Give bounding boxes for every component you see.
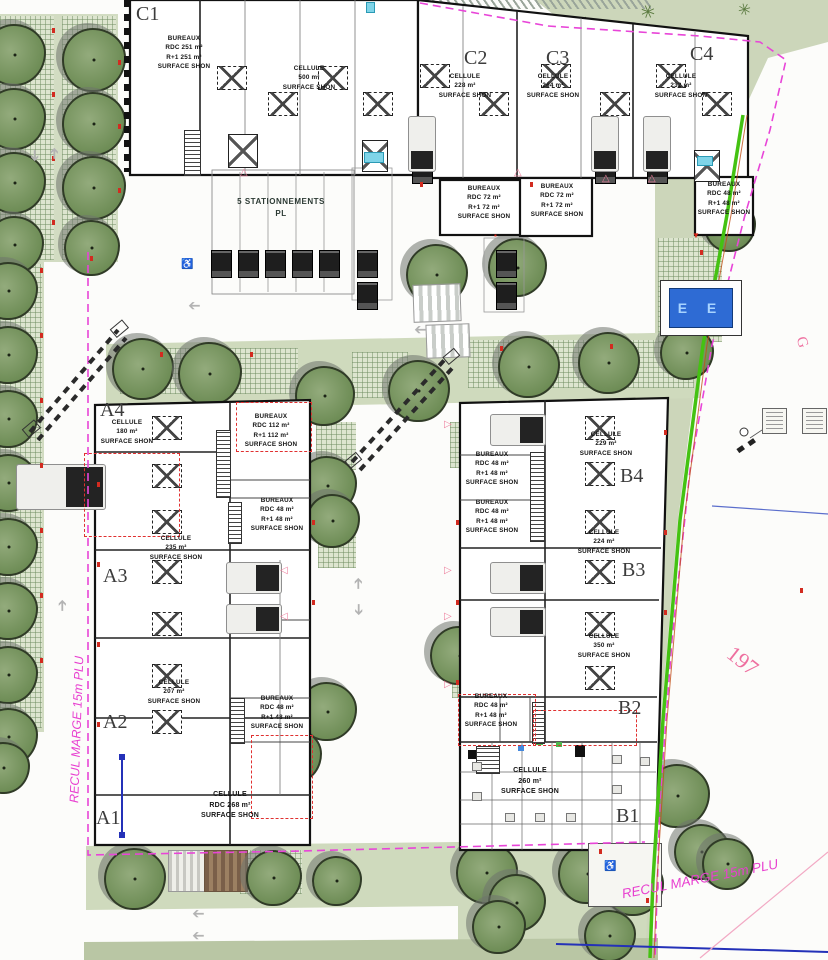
- red-tick: [800, 588, 803, 593]
- b4-bureaux2-label: BUREAUX RDC 48 m² R+1 48 m² SURFACE SHON: [460, 498, 524, 536]
- traffic-arrow-icon: ➔: [192, 928, 205, 943]
- red-tick: [250, 352, 253, 357]
- a3-cellule-label: CELLULE 235 m² SURFACE SHON: [144, 534, 208, 562]
- red-tick: [40, 398, 43, 403]
- b1-cellule-label: CELLULE 260 m² SURFACE SHON: [496, 766, 564, 798]
- red-tick: [456, 680, 459, 685]
- door-triangle-icon: △: [240, 168, 248, 178]
- building-label-a3: A3: [103, 566, 127, 586]
- wheelchair-icon: ♿: [604, 862, 616, 872]
- red-tick: [97, 722, 100, 727]
- bureaux-72b-label: BUREAUX RDC 72 m² R+1 72 m² SURFACE SHON: [524, 182, 590, 220]
- stationnements-label: 5 STATIONNEMENTS PL: [220, 196, 342, 220]
- bureaux-72a-label: BUREAUX RDC 72 m² R+1 72 m² SURFACE SHON: [444, 184, 524, 222]
- a1-cellule-label: CELLULE RDC 268 m² SURFACE SHON: [170, 790, 290, 822]
- red-tick: [97, 562, 100, 567]
- building-label-b4: B4: [620, 466, 643, 486]
- red-tick: [420, 182, 423, 187]
- red-tick: [52, 28, 55, 33]
- building-label-c1: C1: [136, 4, 159, 24]
- building-label-c3: C3: [546, 48, 569, 68]
- glazing-mark: [366, 2, 375, 13]
- red-tick: [52, 92, 55, 97]
- glazing-mark: [364, 152, 384, 163]
- b4-bureaux1-label: BUREAUX RDC 48 m² R+1 48 m² SURFACE SHON: [460, 450, 524, 488]
- red-tick: [610, 344, 613, 349]
- door-triangle-icon: ▷: [444, 566, 452, 576]
- red-tick: [97, 482, 100, 487]
- traffic-arrow-icon: ➔: [351, 577, 366, 590]
- red-tick: [700, 250, 703, 255]
- red-tick: [40, 593, 43, 598]
- door-triangle-icon: △: [514, 168, 522, 178]
- utility-note-box: [802, 408, 827, 434]
- b2-cellule-label: CELLULE 350 m² SURFACE SHON: [572, 632, 636, 660]
- b3-cellule-label: CELLULE 224 m² SURFACE SHON: [572, 528, 636, 556]
- red-tick: [40, 463, 43, 468]
- red-tick: [40, 528, 43, 533]
- door-triangle-icon: ▼: [692, 232, 700, 240]
- a2-bureaux-label: BUREAUX RDC 48 m² R+1 48 m² SURFACE SHON: [246, 694, 308, 732]
- traffic-arrow-icon: ➔: [351, 603, 366, 616]
- red-tick: [646, 898, 649, 903]
- glazing-mark: [697, 156, 713, 166]
- bureaux-48-label: BUREAUX RDC 48 m² R+1 48 m² SURFACE SHON: [696, 180, 752, 218]
- red-tick: [456, 600, 459, 605]
- traffic-arrow-icon: ➔: [188, 298, 201, 313]
- building-label-c2: C2: [464, 48, 487, 68]
- wheelchair-icon: ♿: [181, 260, 193, 270]
- red-tick: [456, 520, 459, 525]
- door-triangle-icon: ◁: [280, 566, 288, 576]
- traffic-arrow-icon: ➔: [414, 322, 427, 337]
- red-tick: [160, 352, 163, 357]
- red-tick: [118, 188, 121, 193]
- site-plan: E E ♿ ♿ C1 C2 C3 C4 A4 A3 A2 A1 B4 B3 B2…: [0, 0, 828, 960]
- building-label-a4: A4: [100, 400, 124, 420]
- red-tick: [664, 530, 667, 535]
- b2-bureaux-label: BUREAUX RDC 48 m² R+1 48 m² SURFACE SHON: [458, 692, 524, 730]
- door-triangle-icon: ◁: [280, 612, 288, 622]
- door-triangle-icon: △: [602, 174, 610, 184]
- door-triangle-icon: △: [648, 174, 656, 184]
- b4-cellule-label: CELLULE 229 m² SURFACE SHON: [574, 430, 638, 458]
- traffic-arrow-icon: ➔: [27, 149, 42, 162]
- red-tick: [97, 642, 100, 647]
- building-label-b1: B1: [616, 806, 639, 826]
- building-label-a1: A1: [96, 808, 120, 828]
- red-tick: [40, 333, 43, 338]
- red-tick: [40, 268, 43, 273]
- building-label-b3: B3: [622, 560, 645, 580]
- a4-cellule-label: CELLULE 180 m² SURFACE SHON: [96, 418, 158, 446]
- c1-cellule-label: CELLULE 500 m² SURFACE SHON: [276, 64, 342, 92]
- red-tick: [118, 124, 121, 129]
- traffic-arrow-icon: ➔: [55, 599, 70, 612]
- red-tick: [312, 520, 315, 525]
- red-dashed-outline: [84, 453, 180, 537]
- door-triangle-icon: ▷: [444, 612, 452, 622]
- door-triangle-icon: ▷: [444, 680, 452, 690]
- c2-cellule-label: CELLULE 228 m² SURFACE SHON: [432, 72, 498, 100]
- building-label-a2: A2: [103, 712, 127, 732]
- red-tick: [500, 346, 503, 351]
- c1-bureaux-label: BUREAUX RDC 251 m² R+1 251 m² SURFACE SH…: [144, 34, 224, 72]
- red-tick: [52, 220, 55, 225]
- door-triangle-icon: ▷: [444, 420, 452, 430]
- a4-bureaux-label: BUREAUX RDC 112 m² R+1 112 m² SURFACE SH…: [232, 412, 310, 450]
- red-tick: [664, 610, 667, 615]
- red-tick: [90, 256, 93, 261]
- red-tick: [40, 658, 43, 663]
- red-tick: [599, 849, 602, 854]
- totem-sign: E E: [660, 280, 742, 336]
- traffic-arrow-icon: ➔: [192, 906, 205, 921]
- totem-sign-text: E E: [669, 288, 733, 328]
- utility-note-box: [762, 408, 787, 434]
- red-tick: [664, 430, 667, 435]
- door-triangle-icon: ▪: [494, 232, 497, 240]
- building-label-c4: C4: [690, 44, 713, 64]
- traffic-arrow-icon: ➔: [47, 147, 62, 160]
- red-tick: [118, 60, 121, 65]
- a2-cellule-label: CELLULE 207 m² SURFACE SHON: [142, 678, 206, 706]
- a4-bureaux2-label: BUREAUX RDC 48 m² R+1 48 m² SURFACE SHON: [246, 496, 308, 534]
- c3-cellule-label: CELLULE 264 m² SURFACE SHON: [520, 72, 586, 100]
- building-label-b2: B2: [618, 698, 641, 718]
- red-tick: [312, 600, 315, 605]
- c4-cellule-label: CELLULE 232 m² SURFACE SHON: [648, 72, 714, 100]
